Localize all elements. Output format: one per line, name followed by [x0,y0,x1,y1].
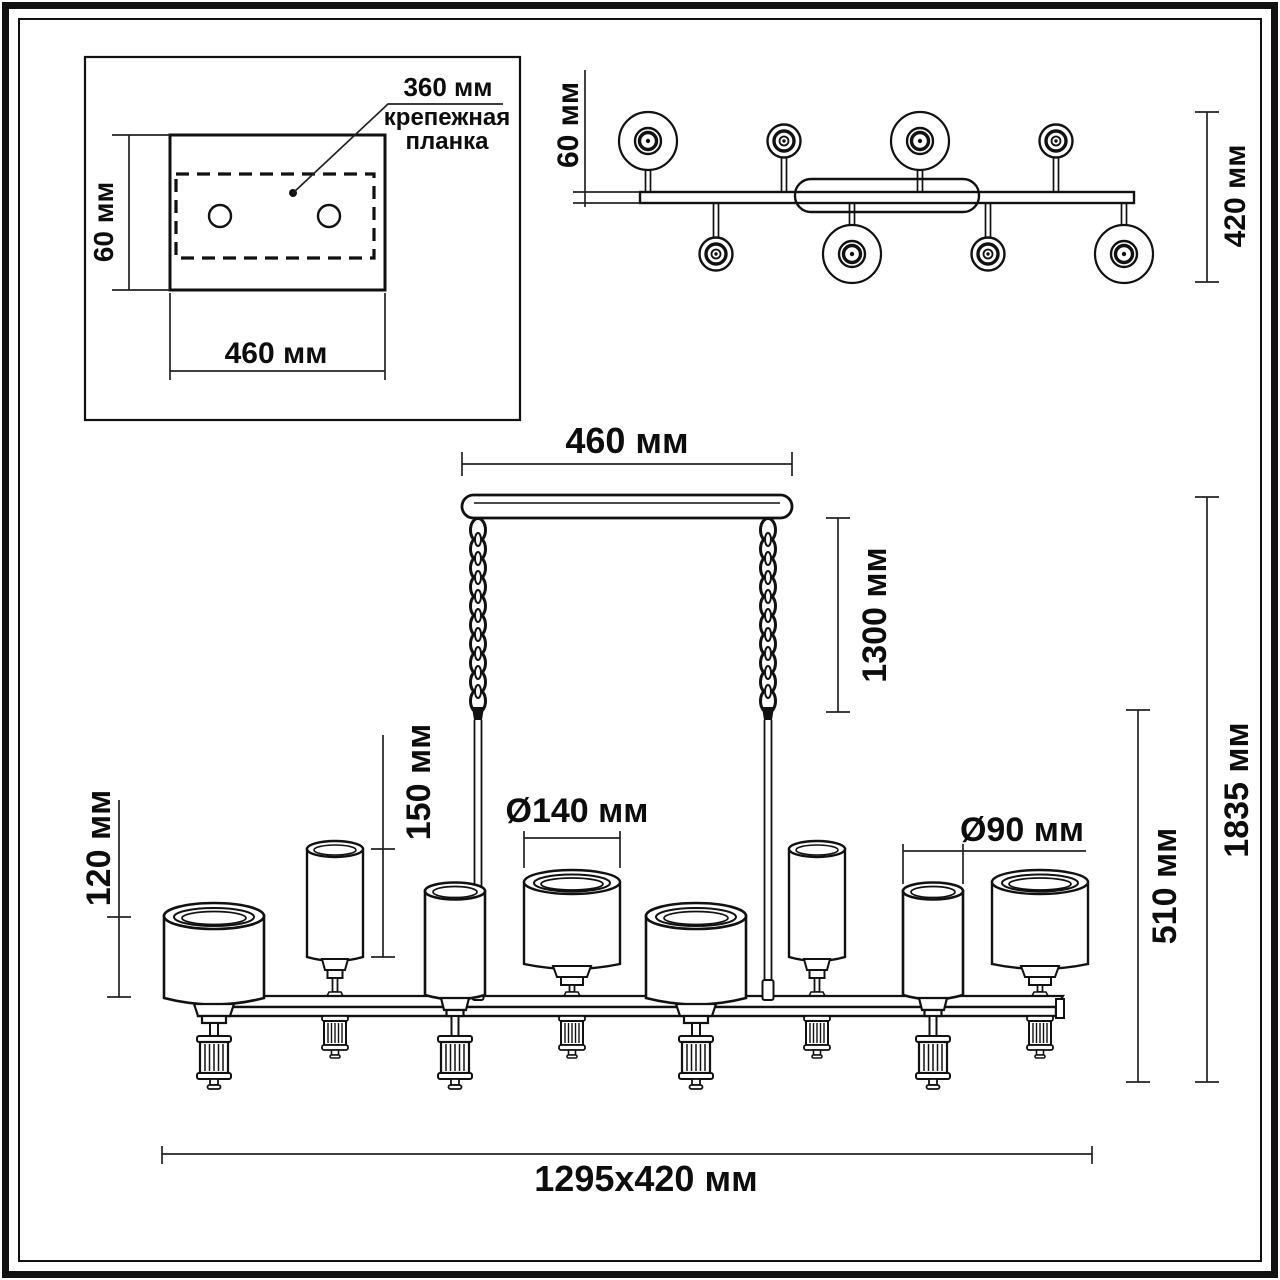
label-small-shade-diameter: Ø90 мм [960,811,1084,849]
shade-back-narrow-1 [307,841,363,996]
canopy [462,495,792,518]
shade-back-wide-1 [524,870,620,996]
finial-large [679,1036,713,1089]
top-view-lamp-large [891,112,949,170]
screw-hole-right [318,205,340,227]
top-view-lamp-large [619,112,677,170]
label-canopy-width: 460 мм [565,420,688,461]
screw-hole-left [209,205,231,227]
label-body-height: 510 мм [1146,828,1184,944]
top-view-lamp-small [1040,125,1073,158]
dim-large-shade-height: 120 мм [80,790,131,997]
shade-back-wide-2 [992,870,1088,996]
dim-body-height: 510 мм [1126,710,1184,1082]
finial-small [804,1016,830,1058]
label-top-view-bar-depth: 60 мм [552,82,585,168]
chandelier-dimension-drawing: 360 мм крепежная планка 60 мм 460 мм [0,0,1280,1280]
label-large-shade-height: 120 мм [80,790,118,906]
label-suspension-length: 1300 мм [856,547,894,682]
label-bracket-caption-1: крепежная [384,104,510,131]
dim-inset-plate-height: 60 мм [88,135,170,290]
front-view: 460 мм 1300 мм 150 мм 120 мм Ø14 [80,420,1256,1199]
top-view-bar [640,192,1134,203]
dim-overall-height: 1835 мм [1195,497,1256,1082]
top-view-lamp-small [972,238,1005,271]
chain-right [761,516,776,998]
technical-drawing-page: 360 мм крепежная планка 60 мм 460 мм [0,0,1280,1280]
finial-large [197,1036,231,1089]
label-overall-footprint: 1295x420 мм [534,1158,757,1199]
label-inset-plate-width: 460 мм [225,337,328,370]
label-small-shade-height: 150 мм [400,724,438,840]
dim-top-view-overall-depth: 420 мм [1195,112,1252,282]
dim-suspension-length: 1300 мм [826,518,894,712]
mounting-bar-dashed-outline [176,174,374,258]
label-top-view-overall-depth: 420 мм [1219,145,1252,248]
label-inset-plate-height: 60 мм [88,182,119,262]
dim-inset-plate-width: 460 мм [170,293,385,380]
mounting-detail-inset: 360 мм крепежная планка 60 мм 460 мм [85,57,520,420]
top-view-lamp-large [1095,225,1153,283]
dim-large-shade-diameter: Ø140 мм [506,792,649,868]
rod-collar-right [763,980,774,1000]
shade-back-narrow-2 [789,841,845,996]
top-view-lamp-small [768,125,801,158]
finial-small [1027,1016,1053,1058]
finial-large [438,1036,472,1089]
top-view: 60 мм 420 мм [552,70,1252,283]
top-view-lamp-small [700,238,733,271]
label-large-shade-diameter: Ø140 мм [506,792,649,830]
label-overall-height: 1835 мм [1218,722,1256,857]
label-bracket-length: 360 мм [403,72,492,102]
dim-overall-footprint: 1295x420 мм [162,1146,1092,1199]
dim-canopy-width: 460 мм [462,420,792,476]
label-bracket-caption-2: планка [406,128,490,155]
canopy-plate-outline [170,135,385,290]
finial-large [916,1036,950,1089]
top-view-lamp-large [823,225,881,283]
finial-small [322,1016,348,1058]
finial-small [559,1016,585,1058]
